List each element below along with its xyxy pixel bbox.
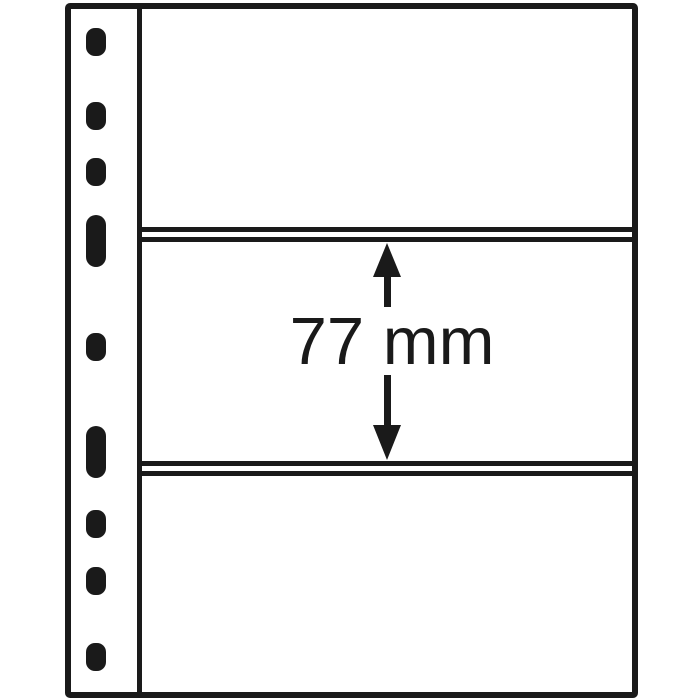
punch-hole xyxy=(86,28,106,56)
measure-arrow-up-tail xyxy=(384,275,391,307)
punch-hole xyxy=(86,643,106,671)
measure-arrow-down-icon xyxy=(373,425,401,460)
punch-hole xyxy=(86,567,106,595)
pocket-divider-line xyxy=(142,471,634,476)
punch-slot xyxy=(86,215,106,267)
punch-hole xyxy=(86,510,106,538)
punch-hole xyxy=(86,333,106,361)
measurement-label: 77 mm xyxy=(290,308,495,375)
pocket-divider-line xyxy=(142,227,634,232)
spine-line xyxy=(137,9,142,692)
punch-slot xyxy=(86,426,106,478)
punch-hole xyxy=(86,102,106,130)
measure-arrow-down-tail xyxy=(384,375,391,426)
pocket-divider-line xyxy=(142,461,634,466)
measure-arrow-up-icon xyxy=(373,243,401,277)
punch-hole xyxy=(86,158,106,186)
binder-sheet-diagram: 77 mm xyxy=(0,0,700,700)
pocket-divider-line xyxy=(142,237,634,242)
